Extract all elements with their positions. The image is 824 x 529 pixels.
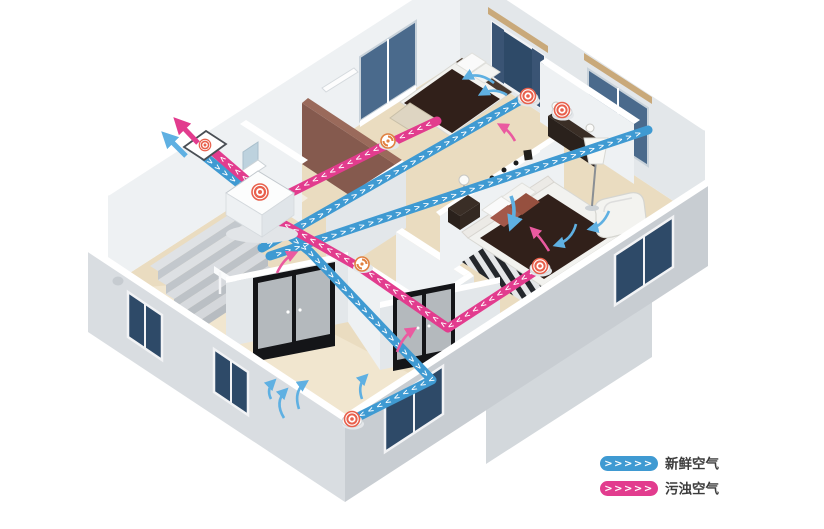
ventilation-diagram-page: >>>>>>>>>>>>>>>>>>>>>>>>>>>>>>>>>>>>>>>>… [0,0,824,529]
table-lamp [586,124,594,132]
legend-fresh-chevrons: >>>>> [604,459,653,470]
unit-target-icon [252,184,268,200]
legend-item-fresh: >>>>> 新鲜空气 [600,456,719,473]
legend-exhaust-label: 污浊空气 [665,481,719,498]
duct-chevrons: >>>>>>>>>>>>>>>>>>>>>>>>>>>>>>>>>>>>>>>>… [0,0,257,190]
table-lamp [459,175,469,185]
double-door-left [253,262,335,362]
wall-knob [113,277,124,286]
vent-target-icon [199,139,211,151]
legend: >>>>> 新鲜空气 >>>>> 污浊空气 [600,456,719,498]
duct-chevrons: >>>>>>>>>>>>>>>>>>>>>>>>>>>>>>>>>>>>>>>>… [0,0,256,199]
legend-fresh-label: 新鲜空气 [665,456,719,473]
legend-exhaust-chevrons: >>>>> [604,484,653,495]
legend-item-exhaust: >>>>> 污浊空气 [600,481,719,498]
house-ventilation-illustration: >>>>>>>>>>>>>>>>>>>>>>>>>>>>>>>>>>>>>>>>… [0,0,824,529]
